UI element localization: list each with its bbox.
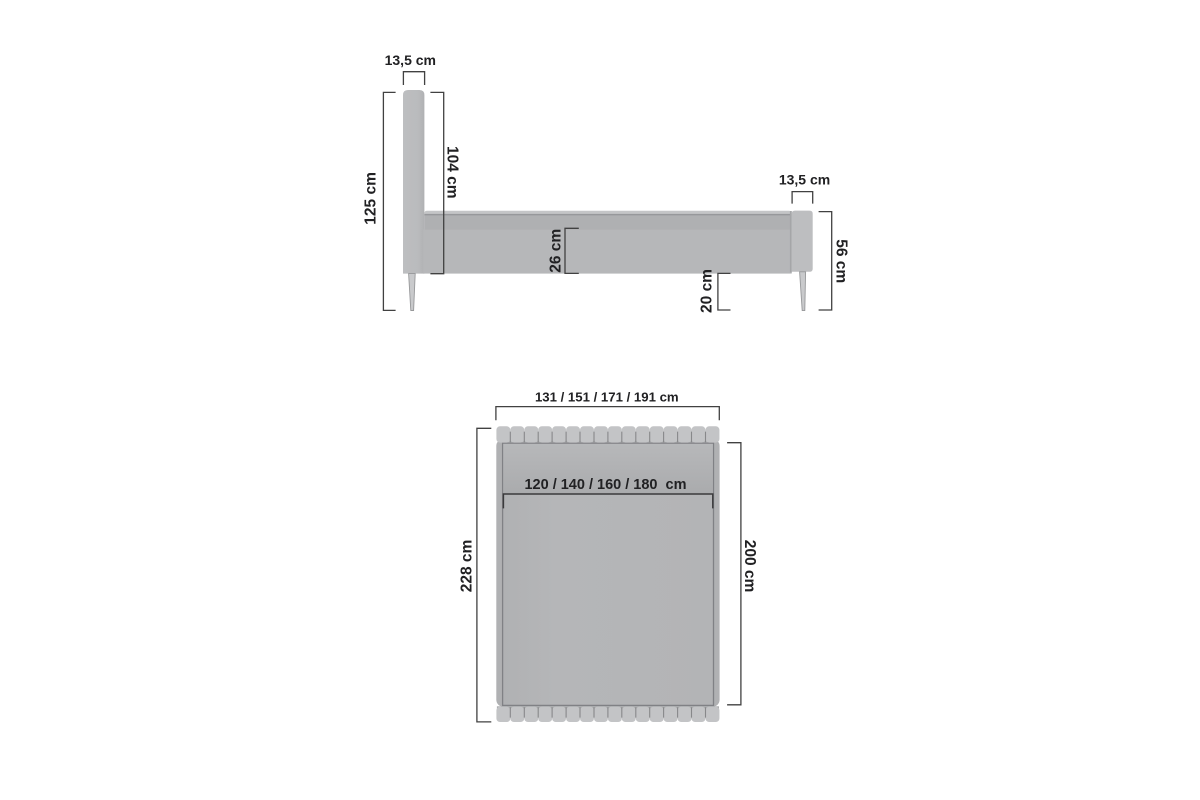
svg-text:13,5 cm: 13,5 cm bbox=[779, 172, 830, 188]
svg-text:200 cm: 200 cm bbox=[741, 540, 758, 593]
svg-text:20 cm: 20 cm bbox=[699, 269, 716, 313]
svg-text:13,5 cm: 13,5 cm bbox=[385, 52, 436, 68]
svg-text:131 / 151 / 171 / 191 cm: 131 / 151 / 171 / 191 cm bbox=[535, 390, 679, 405]
svg-text:56 cm: 56 cm bbox=[833, 239, 850, 283]
svg-text:228 cm: 228 cm bbox=[459, 540, 476, 593]
svg-text:125 cm: 125 cm bbox=[363, 172, 380, 225]
svg-text:120 / 140 / 160 / 180 cm: 120 / 140 / 160 / 180 cm bbox=[524, 477, 686, 493]
svg-text:104 cm: 104 cm bbox=[444, 146, 461, 199]
svg-text:26 cm: 26 cm bbox=[547, 229, 564, 273]
